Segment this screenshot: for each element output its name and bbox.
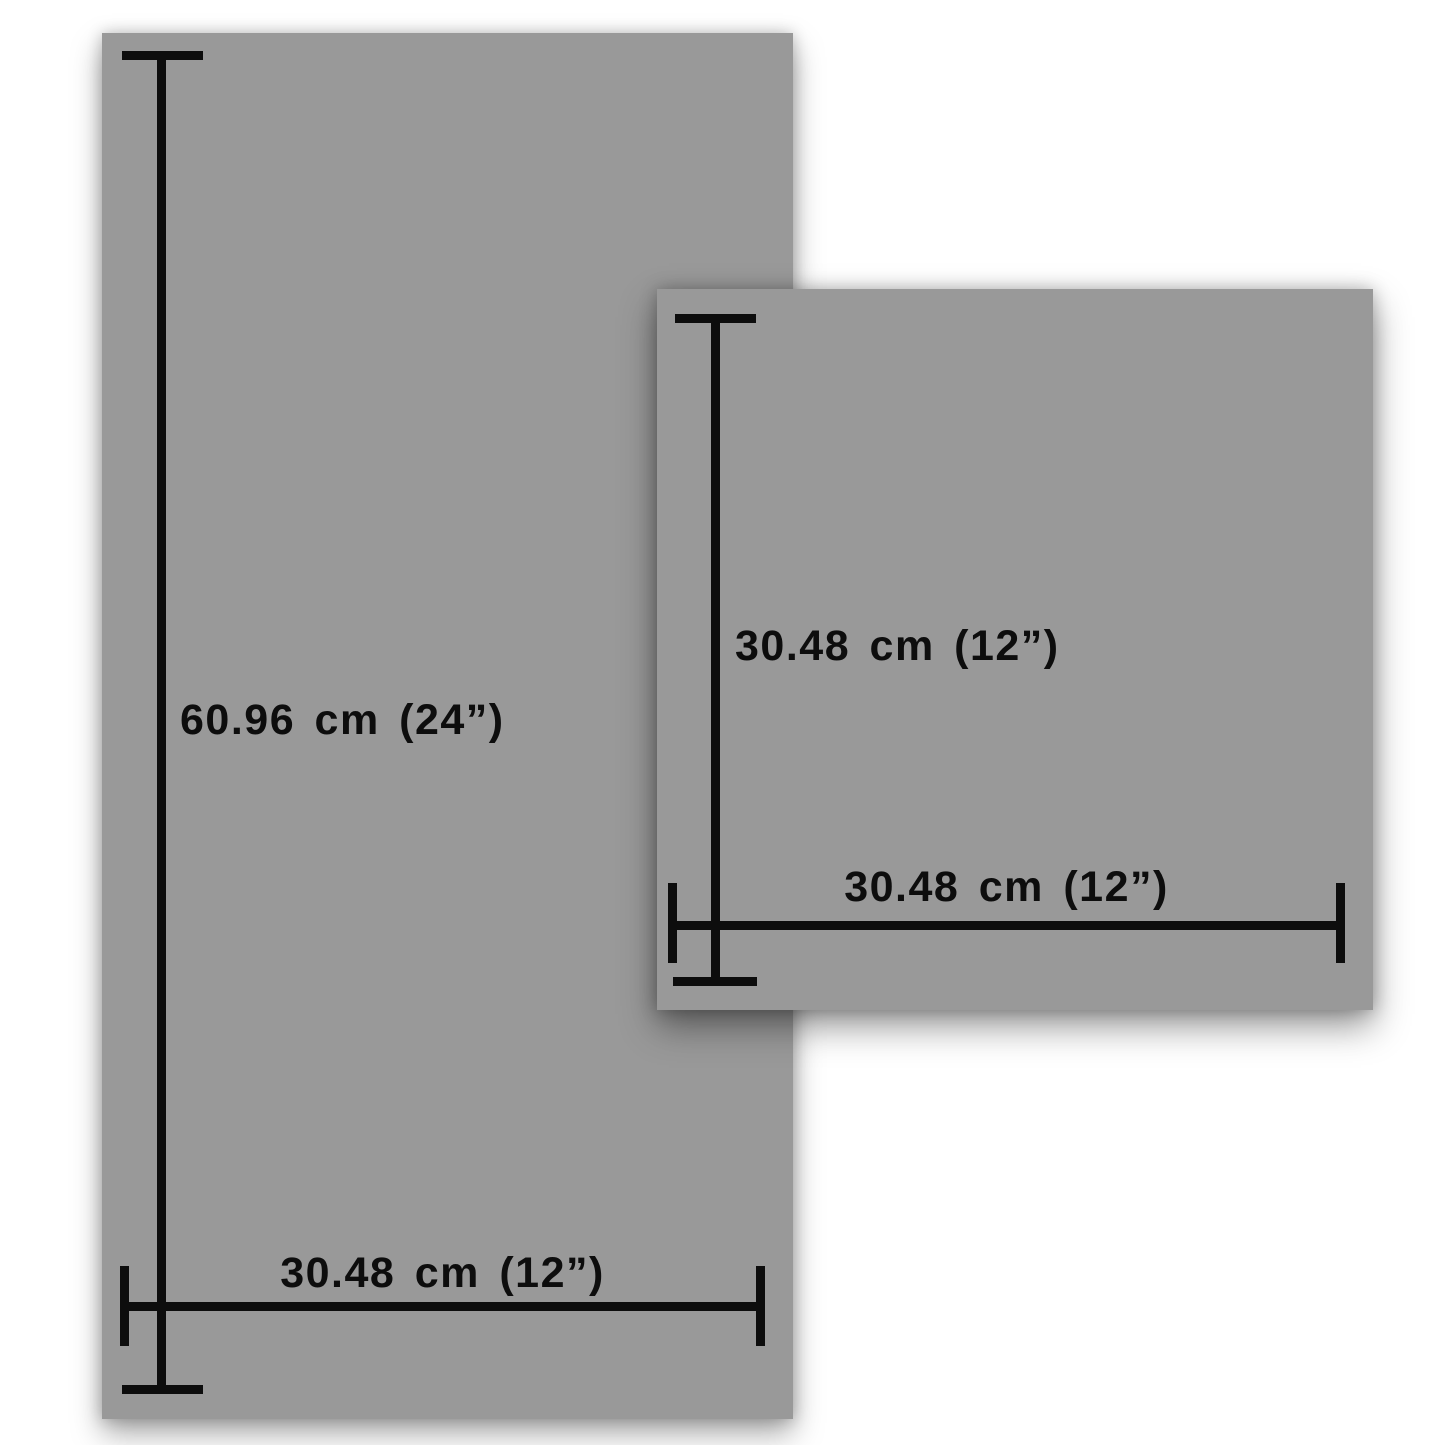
width-dimension-line [120, 1302, 765, 1311]
width-label: 30.48 cm (12”) [120, 1252, 765, 1295]
width-dimension-line [668, 921, 1345, 930]
size-comparison-diagram: 60.96 cm (24”) 30.48 cm (12”) 30.48 cm (… [0, 0, 1445, 1445]
height-label: 60.96 cm (24”) [180, 699, 505, 742]
height-label: 30.48 cm (12”) [735, 625, 1060, 668]
height-dimension-bottom-cap [122, 1385, 203, 1394]
panel-square: 30.48 cm (12”) 30.48 cm (12”) [657, 289, 1373, 1010]
height-dimension-line [157, 51, 166, 1394]
width-label: 30.48 cm (12”) [668, 866, 1345, 909]
height-dimension-bottom-cap [673, 977, 757, 986]
